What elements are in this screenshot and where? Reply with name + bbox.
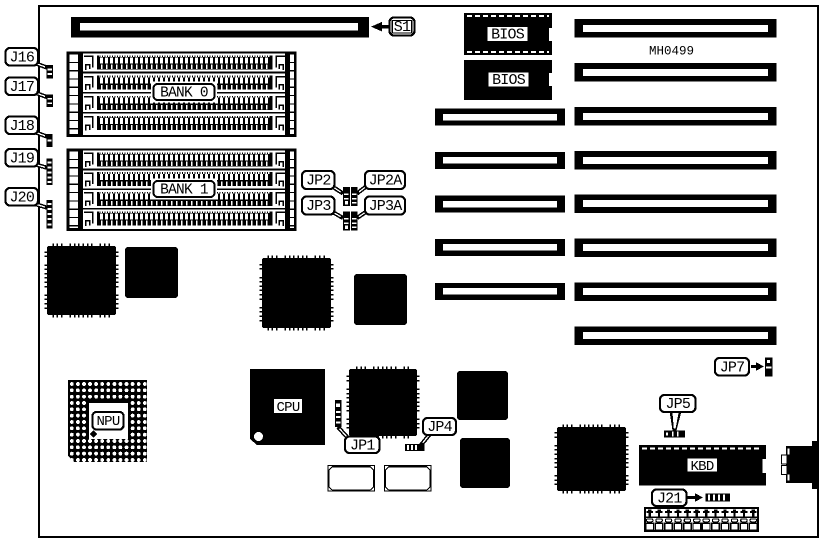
svg-text:J17: J17: [9, 79, 34, 96]
svg-text:BIOS: BIOS: [491, 27, 525, 44]
svg-text:MH0499: MH0499: [649, 45, 694, 59]
svg-text:BANK 1: BANK 1: [160, 183, 208, 199]
svg-text:JP1: JP1: [350, 438, 375, 455]
svg-text:JP4: JP4: [427, 419, 452, 436]
svg-text:S1: S1: [394, 19, 411, 36]
svg-text:JP5: JP5: [665, 396, 690, 413]
svg-text:BANK 0: BANK 0: [160, 86, 208, 102]
svg-text:JP2A: JP2A: [369, 173, 403, 190]
svg-text:CPU: CPU: [277, 400, 300, 416]
svg-text:J16: J16: [9, 50, 34, 67]
svg-text:NPU: NPU: [97, 414, 120, 430]
svg-text:J19: J19: [9, 151, 34, 168]
svg-text:JP3: JP3: [306, 198, 331, 215]
svg-text:J18: J18: [9, 118, 34, 135]
svg-text:J21: J21: [657, 491, 682, 508]
svg-text:JP2: JP2: [306, 173, 331, 190]
svg-text:JP3A: JP3A: [369, 198, 403, 215]
svg-text:KBD: KBD: [691, 459, 714, 475]
svg-text:JP7: JP7: [720, 360, 745, 377]
svg-text:J20: J20: [9, 190, 34, 207]
svg-text:BIOS: BIOS: [492, 72, 526, 89]
